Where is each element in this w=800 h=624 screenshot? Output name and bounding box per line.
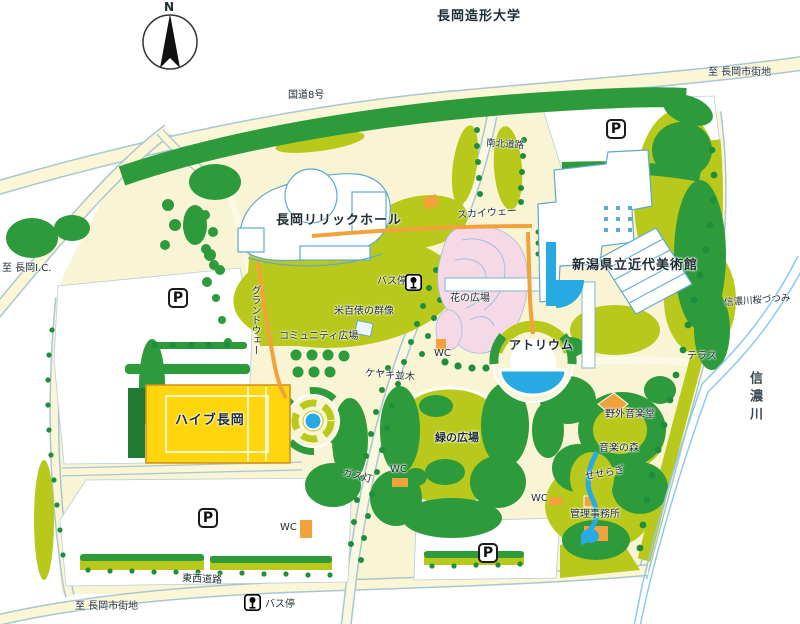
flower-plaza-label: 花の広場 <box>450 294 490 304</box>
to-city-bottom-label: 至 長岡市街地 <box>75 602 138 612</box>
community-plaza-label: コミュニティ広場 <box>279 332 358 342</box>
compass-north-label: N <box>164 1 175 13</box>
to-city-top-label: 至 長岡市街地 <box>708 68 771 78</box>
parking-icon-northeast: P <box>606 119 626 139</box>
compass-rose <box>143 14 197 69</box>
wc-music-label: WC <box>531 494 548 504</box>
music-forest-label: 音楽の森 <box>599 444 639 454</box>
shinano-river-label: 信濃川 <box>748 371 761 425</box>
bus-stop-mid-label: バス停 <box>377 277 407 287</box>
admin-office-label: 管理事務所 <box>570 510 620 520</box>
outdoor-music-hall-label: 野外音楽堂 <box>605 410 655 420</box>
parking-icon-southeast: P <box>478 543 498 563</box>
museum-label: 新潟県立近代美術館 <box>572 259 698 272</box>
parking-icon-west: P <box>168 288 188 308</box>
lyric-hall-label: 長岡リリックホール <box>276 214 402 227</box>
grandway-label: グランドウェー <box>249 285 259 355</box>
bus-stop-glyph <box>244 594 261 611</box>
green-plaza-label: 緑の広場 <box>435 432 479 443</box>
park-map: N 長岡造形大学 国道8号 至 長岡市街地 南北道路 長岡リリックホール スカイ… <box>0 0 800 624</box>
atrium-label: アトリウム <box>509 339 574 351</box>
university-label: 長岡造形大学 <box>437 10 521 23</box>
north-south-road-label: 南北道路 <box>486 139 525 151</box>
to-nagaoka-ic-label: 至 長岡I.C. <box>2 264 51 274</box>
east-west-road-label: 東西道路 <box>182 574 222 586</box>
route8-label: 国道8号 <box>288 91 324 101</box>
hive-nagaoka-label: ハイブ長岡 <box>175 414 245 427</box>
wc-flower-label: WC <box>434 349 451 359</box>
wc-green-west-label: WC <box>390 465 407 475</box>
parking-icon-south: P <box>198 508 218 528</box>
bus-stop-glyph <box>405 274 422 291</box>
rice-bales-label: 米百俵の群像 <box>334 307 394 317</box>
map-artwork <box>0 0 800 624</box>
wc-south-label: WC <box>280 523 297 533</box>
terrace-label: テラス <box>687 352 717 362</box>
bus-stop-bottom-label: バス停 <box>265 600 295 610</box>
bus-stop-icon-mid <box>405 274 422 291</box>
bus-stop-icon-bottom <box>244 594 261 611</box>
